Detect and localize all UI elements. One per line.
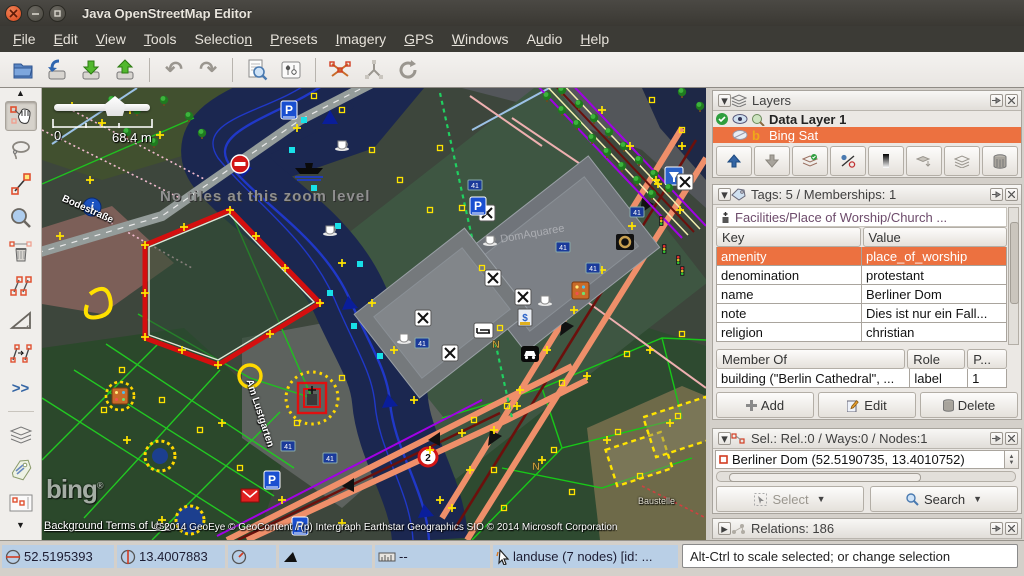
- layer-move-down-button[interactable]: [754, 146, 790, 176]
- traffic-light-icon: [680, 266, 685, 276]
- upload-data-button[interactable]: [110, 56, 140, 84]
- restaurant-icon: [515, 289, 531, 305]
- selection-panel-header: ▾ Sel.: Rel.:0 / Ways:0 / Nodes:1: [713, 429, 1021, 449]
- bing-layer-icon: b: [751, 128, 765, 142]
- longitude-field: 13.4007883: [117, 545, 225, 568]
- menu-windows[interactable]: Windows: [443, 28, 518, 50]
- undo-icon: ↶: [165, 59, 183, 80]
- hotel-icon: [474, 323, 493, 338]
- selection-panel: ▾ Sel.: Rel.:0 / Ways:0 / Nodes:1 Berlin…: [712, 428, 1022, 514]
- marketplace-icon: [572, 282, 589, 299]
- close-panel-icon[interactable]: [1005, 94, 1018, 107]
- housenumber-icon: 41: [468, 180, 482, 190]
- svg-text:41: 41: [559, 245, 567, 252]
- layer-row-data[interactable]: Data Layer 1: [713, 111, 1021, 127]
- tag-row[interactable]: nameBerliner Dom: [716, 285, 1007, 304]
- svg-text:41: 41: [633, 210, 641, 217]
- layers-panel: ▾ Layers Data Layer 1 b Bing Sat: [712, 90, 1022, 178]
- layer-name: Bing Sat: [769, 128, 818, 143]
- toggle-selection-panel-button[interactable]: [5, 488, 37, 518]
- map-canvas[interactable]: 2 i: [42, 88, 706, 540]
- layer-duplicate-button[interactable]: [944, 146, 980, 176]
- close-panel-icon[interactable]: [1005, 522, 1018, 535]
- sticky-pin-icon[interactable]: [990, 432, 1003, 445]
- window-maximize-button[interactable]: [49, 5, 66, 22]
- cursor-icon: [496, 549, 510, 565]
- scale-max-label: 68.4 m: [112, 130, 152, 145]
- josm-window: Java OpenStreetMap Editor File Edit View…: [0, 0, 1024, 576]
- preset-label: Facilities/Place of Worship/Church ...: [735, 210, 947, 225]
- relations-panel-title: Relations: 186: [751, 521, 988, 536]
- restaurant-icon: [442, 345, 458, 361]
- bing-logo: bing®: [46, 474, 103, 505]
- sticky-pin-icon[interactable]: [990, 522, 1003, 535]
- collapse-icon[interactable]: ▾: [718, 188, 731, 201]
- svg-text:N: N: [532, 461, 540, 473]
- toolstrip-separator: [8, 411, 34, 412]
- scale-bar: [52, 118, 162, 130]
- menu-audio[interactable]: Audio: [518, 28, 572, 50]
- menu-help[interactable]: Help: [571, 28, 618, 50]
- toolbar-scroll-up-icon[interactable]: ▲: [16, 89, 25, 98]
- sidebar: ▾ Layers Data Layer 1 b Bing Sat: [710, 88, 1024, 540]
- layer-delete-button[interactable]: [982, 146, 1018, 176]
- position-column-header[interactable]: P...: [967, 349, 1007, 369]
- svg-text:2: 2: [425, 453, 431, 464]
- toggle-tags-panel-button[interactable]: [5, 454, 37, 484]
- bank-icon: $: [518, 309, 532, 326]
- angle-icon: [282, 549, 300, 564]
- svg-text:P: P: [285, 103, 293, 117]
- restaurant-icon: [485, 270, 501, 286]
- layer-opacity-button[interactable]: [868, 146, 904, 176]
- redo-button[interactable]: ↷: [193, 56, 223, 84]
- lasso-tool-button[interactable]: [5, 135, 37, 165]
- layers-panel-header: ▾ Layers: [713, 91, 1021, 111]
- node-icon: [719, 455, 728, 464]
- svg-text:41: 41: [418, 341, 426, 348]
- download-along-button[interactable]: [42, 56, 72, 84]
- menu-imagery[interactable]: Imagery: [327, 28, 396, 50]
- search-icon: [906, 493, 919, 506]
- titlebar: Java OpenStreetMap Editor: [0, 0, 1024, 27]
- tags-panel-header: ▾ Tags: 5 / Memberships: 1: [713, 185, 1021, 205]
- parking-icon: P: [470, 197, 486, 215]
- tag-row[interactable]: religionchristian: [716, 323, 1007, 342]
- layer-activate-button[interactable]: [792, 146, 828, 176]
- key-column-header[interactable]: Key: [716, 227, 861, 247]
- delete-tag-button[interactable]: Delete: [920, 392, 1018, 418]
- status-help-message: Alt-Ctrl to scale selected; or change se…: [682, 544, 1018, 568]
- plus-icon: [746, 400, 757, 411]
- menu-gps[interactable]: GPS: [395, 28, 443, 50]
- tags-buttons: Add Edit Delete: [716, 392, 1018, 418]
- selection-icon: [731, 433, 746, 445]
- restaurant-icon: [677, 174, 693, 190]
- housenumber-icon: 41: [415, 338, 429, 348]
- layer-visible-icon[interactable]: [732, 113, 748, 125]
- church-icon: [720, 211, 731, 224]
- toggle-layers-panel-button[interactable]: [5, 420, 37, 450]
- preset-row[interactable]: Facilities/Place of Worship/Church ...: [716, 207, 1007, 227]
- restaurant-icon: [415, 310, 431, 326]
- download-data-button[interactable]: [76, 56, 106, 84]
- menubar: File Edit View Tools Selection Presets I…: [0, 26, 1024, 52]
- tags-scrollbar-thumb[interactable]: [1010, 222, 1019, 304]
- layers-toolbar: [713, 143, 1021, 179]
- layer-row-bing[interactable]: b Bing Sat: [713, 127, 1021, 143]
- selection-hscrollbar-thumb[interactable]: [729, 473, 921, 482]
- close-panel-icon[interactable]: [1005, 432, 1018, 445]
- selection-spinner[interactable]: ▲▼: [1005, 450, 1019, 469]
- svg-text:41: 41: [589, 266, 597, 273]
- heading-field: [228, 545, 276, 568]
- more-tools-button[interactable]: >>: [5, 373, 37, 403]
- data-layer-icon: [751, 113, 765, 126]
- undo-button[interactable]: ↶: [159, 56, 189, 84]
- housenumber-icon: 41: [586, 263, 600, 273]
- main-toolbar: ↶ ↷: [0, 52, 1024, 88]
- svg-text:41: 41: [471, 183, 479, 190]
- tags-panel: ▾ Tags: 5 / Memberships: 1 Facilities/Pl…: [712, 184, 1022, 420]
- latitude-icon: [5, 549, 21, 565]
- housenumber-icon: 41: [556, 242, 570, 252]
- mail-icon: [241, 489, 259, 502]
- tag-row[interactable]: denominationprotestant: [716, 266, 1007, 285]
- window-close-button[interactable]: [5, 5, 22, 22]
- member-of-column-header[interactable]: Member Of: [716, 349, 905, 369]
- relations-panel-header: ▸ Relations: 186: [713, 519, 1021, 539]
- selection-panel-title: Sel.: Rel.:0 / Ways:0 / Nodes:1: [751, 431, 988, 446]
- collapse-icon[interactable]: ▾: [718, 432, 731, 445]
- menu-selection[interactable]: Selection: [186, 28, 262, 50]
- traffic-light-icon: [676, 255, 681, 265]
- angle-field: [279, 545, 372, 568]
- housenumber-icon: 41: [630, 207, 644, 217]
- value-column-header[interactable]: Value: [863, 227, 1008, 247]
- menu-edit[interactable]: Edit: [45, 28, 87, 50]
- selection-list: Berliner Dom (52.5190735, 13.4010752) ▲▼: [715, 450, 1019, 469]
- housenumber-icon: 41: [323, 453, 337, 463]
- refresh-button[interactable]: [393, 56, 423, 84]
- tags-panel-title: Tags: 5 / Memberships: 1: [751, 187, 988, 202]
- pencil-icon: [847, 399, 860, 412]
- angle-tool-button[interactable]: [5, 305, 37, 335]
- redo-icon: ↷: [199, 59, 217, 80]
- zoom-tool-button[interactable]: [5, 203, 37, 233]
- svg-text:N: N: [492, 339, 500, 351]
- area-label-baustelle: Baustelle: [638, 496, 675, 506]
- split-way-button[interactable]: [325, 56, 355, 84]
- svg-text:41: 41: [326, 456, 334, 463]
- selection-hscrollbar[interactable]: [716, 471, 1016, 482]
- layer-hidden-icon[interactable]: [732, 129, 748, 141]
- heading-icon: [231, 549, 247, 565]
- close-panel-icon[interactable]: [1005, 188, 1018, 201]
- no-entry-icon: [231, 155, 249, 173]
- tags-table: Key Value amenityplace_of_worship denomi…: [716, 227, 1007, 342]
- parking-icon: P: [281, 101, 297, 119]
- add-tag-button[interactable]: Add: [716, 392, 814, 418]
- relations-icon: [731, 523, 746, 535]
- select-tool-button[interactable]: [5, 101, 37, 131]
- tags-scrollbar[interactable]: [1008, 207, 1019, 345]
- housenumber-icon: 41: [281, 441, 295, 451]
- workspace: ▲ >>: [0, 88, 1024, 540]
- hovered-object-field: landuse (7 nodes) [id: ...: [493, 545, 678, 568]
- window-title: Java OpenStreetMap Editor: [82, 6, 252, 21]
- unglue-tool-button[interactable]: [5, 271, 37, 301]
- role-column-header[interactable]: Role: [907, 349, 965, 369]
- search-button[interactable]: [242, 56, 272, 84]
- tag-row[interactable]: noteDies ist nur ein Fall...: [716, 304, 1007, 323]
- pretzel-icon: [616, 234, 634, 250]
- menu-presets[interactable]: Presets: [261, 28, 326, 50]
- relations-panel: ▸ Relations: 186: [712, 518, 1022, 539]
- layer-move-up-button[interactable]: [716, 146, 752, 176]
- imagery-copyright: © 2014 GeoEye © GeoContent / (p) Intergr…: [154, 522, 617, 533]
- menu-file[interactable]: File: [4, 28, 45, 50]
- no-tiles-message: No tiles at this zoom level: [160, 188, 370, 205]
- trash-icon: [943, 399, 954, 412]
- select-button[interactable]: Select▼: [716, 486, 864, 512]
- svg-text:41: 41: [284, 444, 292, 451]
- selection-list-item[interactable]: Berliner Dom (52.5190735, 13.4010752): [715, 450, 1005, 469]
- layer-active-check-icon: [715, 112, 729, 126]
- collapse-icon[interactable]: ▾: [718, 94, 731, 107]
- membership-row[interactable]: building ("Berlin Cathedral", ... label …: [716, 369, 1007, 388]
- zoom-slider[interactable]: [54, 104, 150, 111]
- scale-min-label: 0: [54, 128, 61, 143]
- svg-text:P: P: [474, 199, 482, 213]
- search-selection-button[interactable]: Search▼: [870, 486, 1018, 512]
- car-rental-icon: [521, 346, 539, 362]
- menu-view[interactable]: View: [87, 28, 135, 50]
- terms-of-use-link[interactable]: Background Terms of Use: [44, 520, 170, 532]
- selection-buttons: Select▼ Search▼: [716, 486, 1018, 512]
- traffic-light-icon: [659, 216, 664, 226]
- latitude-field: 52.5195393: [2, 545, 114, 568]
- layers-panel-title: Layers: [752, 93, 988, 108]
- expand-icon[interactable]: ▸: [718, 522, 731, 535]
- ruler-icon: [378, 551, 396, 563]
- preferences-button[interactable]: [276, 56, 306, 84]
- select-cursor-icon: [754, 493, 767, 506]
- distance-field: --: [375, 545, 490, 568]
- traffic-light-icon: [662, 244, 667, 254]
- statusbar: 52.5195393 13.4007883 -- landuse (7 node…: [0, 540, 1024, 576]
- layer-merge-down-button[interactable]: [906, 146, 942, 176]
- tag-row[interactable]: amenityplace_of_worship: [716, 247, 1007, 266]
- window-minimize-button[interactable]: [27, 5, 44, 22]
- layers-icon: [731, 94, 747, 107]
- open-button[interactable]: [8, 56, 38, 84]
- toolbar-scroll-down-icon[interactable]: ▼: [16, 521, 25, 530]
- longitude-icon: [120, 549, 136, 565]
- layer-name: Data Layer 1: [769, 112, 846, 127]
- layer-visibility-button[interactable]: [830, 146, 866, 176]
- edit-toolbar: ▲ >>: [0, 88, 42, 540]
- svg-text:P: P: [268, 473, 276, 487]
- draw-node-tool-button[interactable]: [5, 169, 37, 199]
- menu-tools[interactable]: Tools: [135, 28, 186, 50]
- delete-tool-button[interactable]: [5, 237, 37, 267]
- tags-icon: [731, 188, 746, 201]
- combine-way-button[interactable]: [359, 56, 389, 84]
- edit-tag-button[interactable]: Edit: [818, 392, 916, 418]
- parking-icon: P: [264, 471, 280, 489]
- sticky-pin-icon[interactable]: [990, 188, 1003, 201]
- sticky-pin-icon[interactable]: [990, 94, 1003, 107]
- svg-text:b: b: [752, 128, 760, 142]
- membership-table: Member Of Role P... building ("Berlin Ca…: [716, 349, 1007, 388]
- map-render: 2 i: [42, 88, 706, 540]
- parallel-way-tool-button[interactable]: [5, 339, 37, 369]
